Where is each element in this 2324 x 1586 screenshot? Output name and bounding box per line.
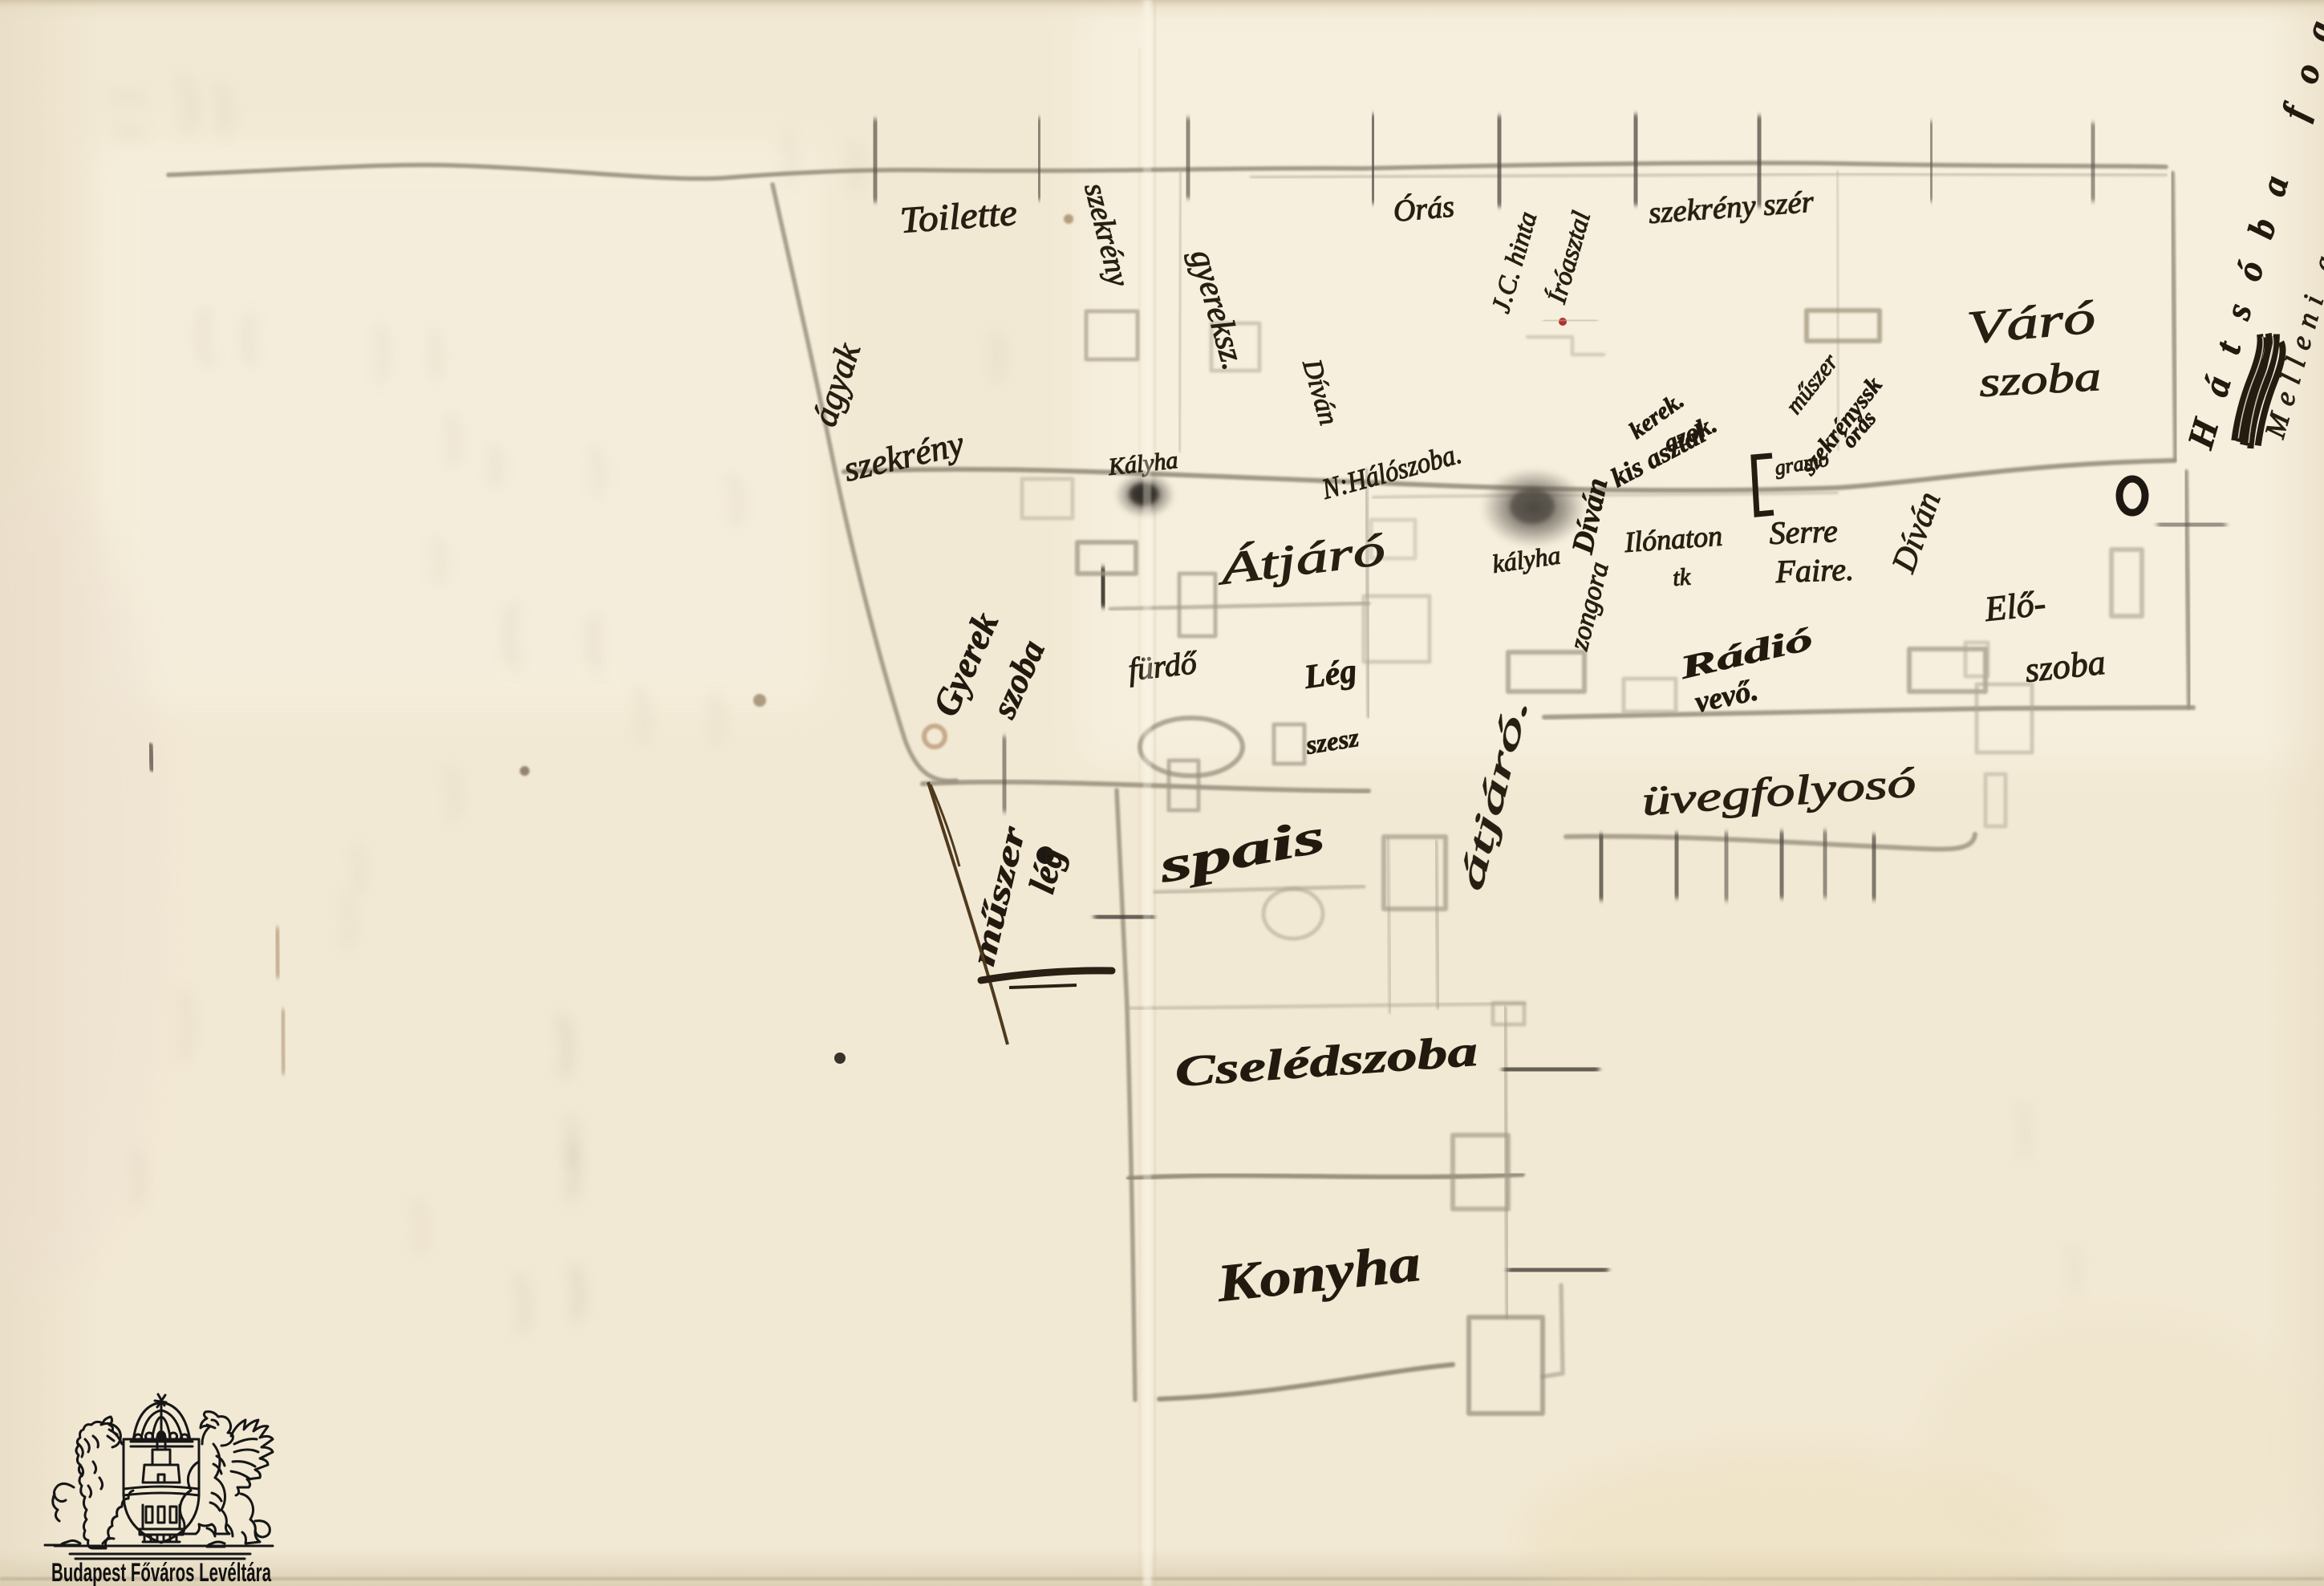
- svg-text:tk: tk: [1672, 564, 1692, 591]
- svg-text:Lég: Lég: [1301, 652, 1359, 696]
- svg-text:Budapest Főváros Levéltára: Budapest Főváros Levéltára: [51, 1558, 271, 1586]
- svg-text:Órás: Órás: [1392, 189, 1455, 228]
- svg-text:Váró: Váró: [1965, 290, 2097, 354]
- svg-text:Ilónaton: Ilónaton: [1623, 520, 1723, 558]
- svg-text:Faire.: Faire.: [1774, 551, 1855, 590]
- svg-text:Toilette: Toilette: [898, 192, 1018, 241]
- svg-text:szoba: szoba: [1978, 354, 2103, 406]
- svg-text:Elő-: Elő-: [1982, 583, 2047, 629]
- svg-text:Serre: Serre: [1769, 513, 1839, 551]
- svg-text:szoba: szoba: [2023, 643, 2107, 690]
- svg-text:fürdő: fürdő: [1126, 644, 1199, 688]
